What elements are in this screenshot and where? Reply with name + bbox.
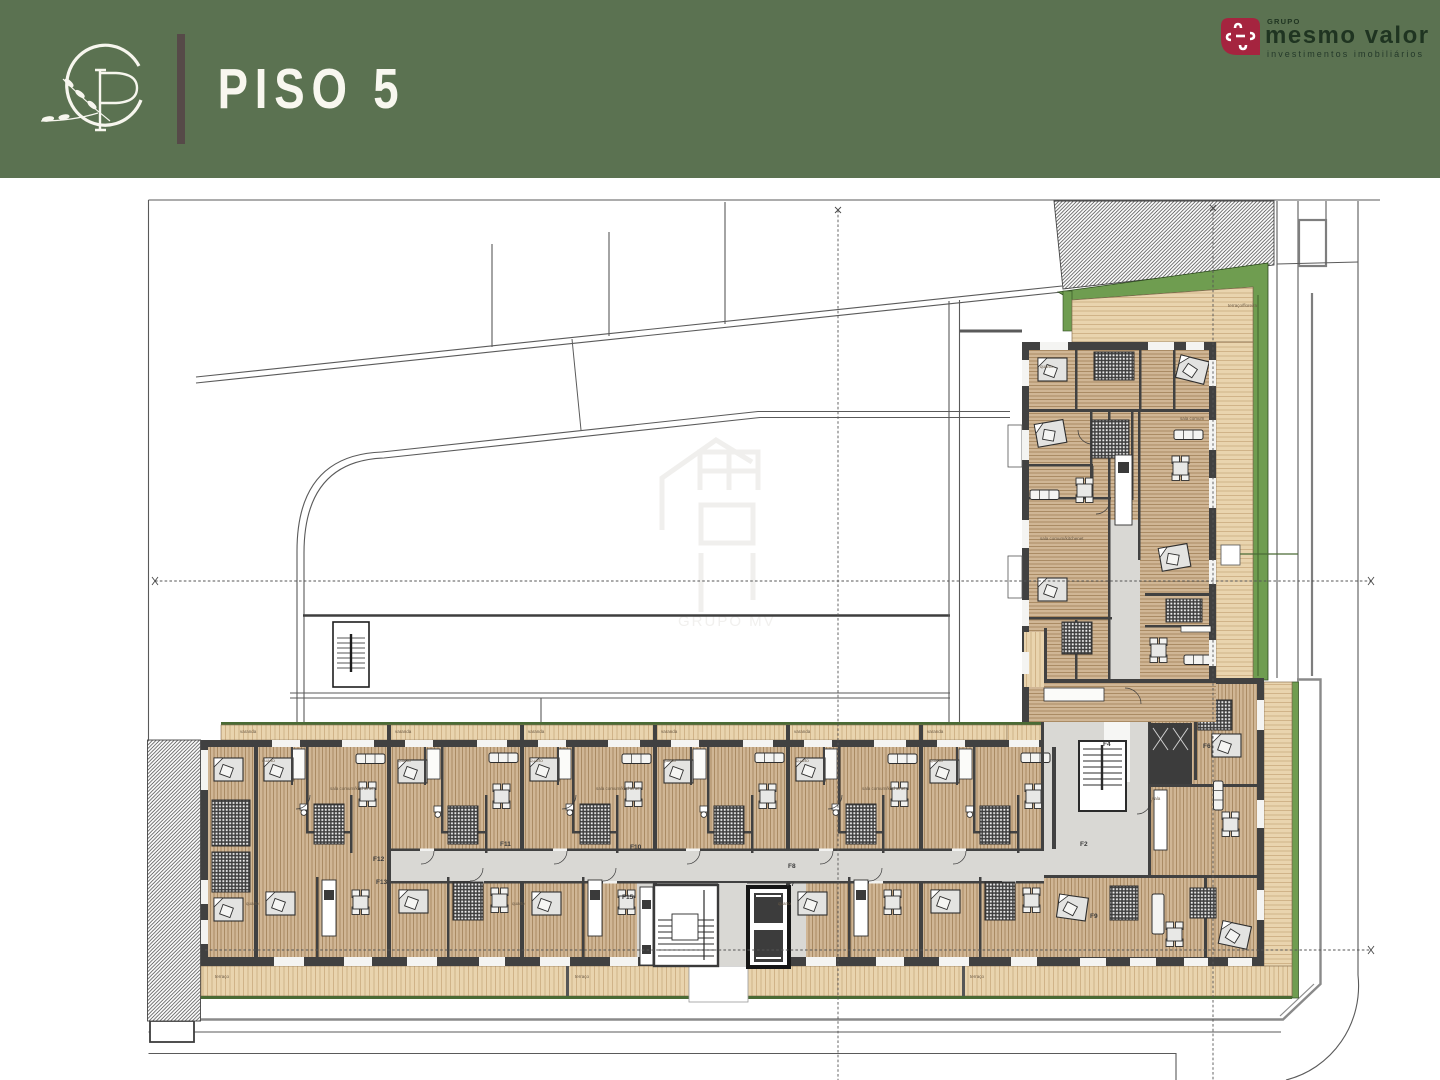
svg-text:varanda: varanda bbox=[661, 729, 678, 734]
svg-text:sala: sala bbox=[1152, 796, 1161, 801]
svg-text:varanda: varanda bbox=[794, 729, 811, 734]
svg-text:mesmo valor: mesmo valor bbox=[1265, 22, 1430, 49]
svg-text:F9: F9 bbox=[1090, 913, 1098, 920]
svg-text:quarto: quarto bbox=[512, 901, 525, 906]
svg-text:quarto: quarto bbox=[246, 901, 259, 906]
svg-text:quarto: quarto bbox=[796, 758, 809, 763]
svg-text:quarto: quarto bbox=[930, 758, 943, 763]
svg-text:F12: F12 bbox=[373, 856, 385, 863]
svg-text:investimentos imobiliários: investimentos imobiliários bbox=[1267, 49, 1424, 59]
svg-text:F11: F11 bbox=[500, 841, 511, 848]
svg-text:terraço: terraço bbox=[970, 974, 985, 979]
svg-text:varanda: varanda bbox=[528, 729, 545, 734]
svg-text:sala comum/kitchenet: sala comum/kitchenet bbox=[862, 786, 906, 791]
svg-text:F15: F15 bbox=[622, 894, 634, 901]
svg-text:quarto: quarto bbox=[663, 758, 676, 763]
svg-text:F6: F6 bbox=[1203, 743, 1211, 750]
svg-text:F4: F4 bbox=[1103, 741, 1111, 748]
svg-text:F13: F13 bbox=[376, 879, 388, 886]
svg-text:quarto: quarto bbox=[398, 758, 411, 763]
svg-text:quarto: quarto bbox=[262, 758, 275, 763]
svg-text:sala comum/kitchenet: sala comum/kitchenet bbox=[596, 786, 640, 791]
svg-text:sala comum: sala comum bbox=[1180, 416, 1205, 421]
svg-text:F2: F2 bbox=[1080, 841, 1088, 848]
svg-text:terraço/floreira: terraço/floreira bbox=[1228, 303, 1258, 308]
svg-text:varanda: varanda bbox=[240, 729, 257, 734]
svg-text:F10: F10 bbox=[630, 844, 642, 851]
svg-text:quarto: quarto bbox=[778, 901, 791, 906]
svg-text:PISO 5: PISO 5 bbox=[218, 56, 406, 120]
svg-text:F7: F7 bbox=[787, 881, 795, 888]
svg-text:sala comum/kitchenet: sala comum/kitchenet bbox=[330, 786, 374, 791]
svg-text:varanda: varanda bbox=[395, 729, 412, 734]
svg-text:terraço: terraço bbox=[575, 974, 590, 979]
svg-text:terraço: terraço bbox=[215, 974, 230, 979]
svg-text:F8: F8 bbox=[788, 863, 796, 870]
svg-text:sala comum/kitchenet: sala comum/kitchenet bbox=[1040, 536, 1084, 541]
svg-text:quarto: quarto bbox=[1040, 364, 1053, 369]
svg-text:varanda: varanda bbox=[927, 729, 944, 734]
svg-text:quarto: quarto bbox=[530, 758, 543, 763]
